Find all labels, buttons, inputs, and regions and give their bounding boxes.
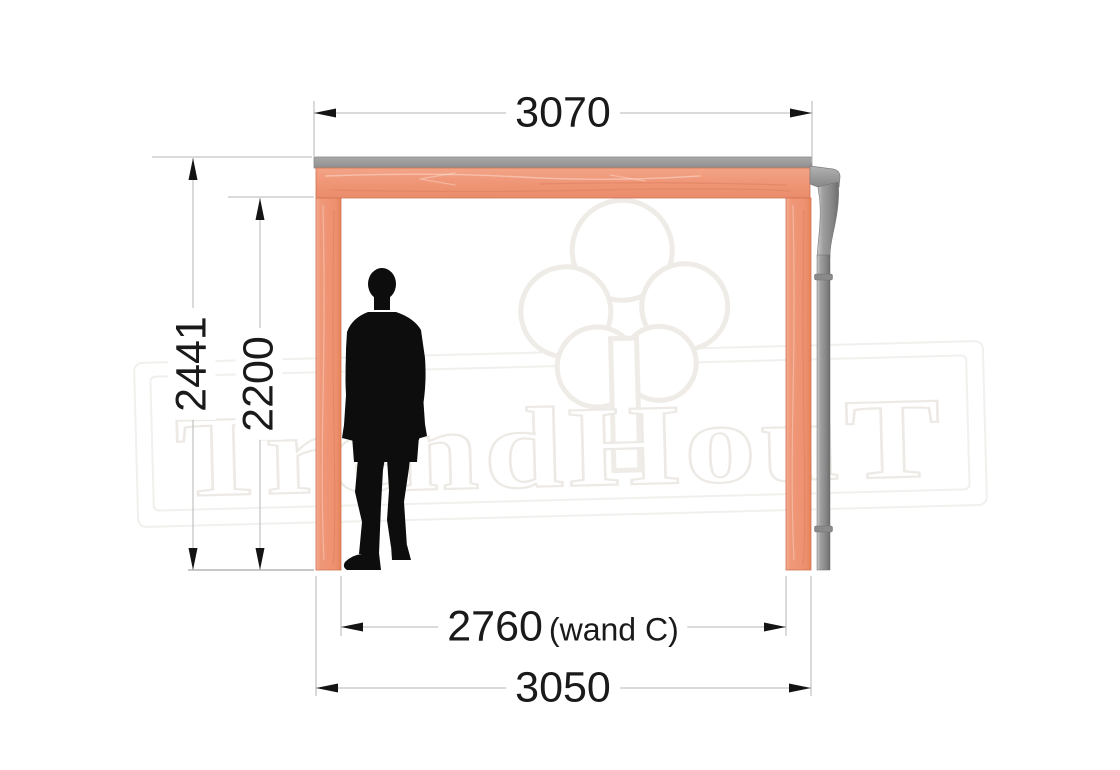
downpipe-curve xyxy=(817,182,839,257)
human-silhouette xyxy=(342,268,427,570)
downpipe-coupling xyxy=(815,274,833,280)
dim-value-inner-width: 2760 xyxy=(447,603,543,651)
dim-label-roof-width: 3070 xyxy=(506,90,620,137)
dim-label-clear-height: 2200 xyxy=(236,328,283,440)
roof-panel xyxy=(314,157,812,168)
left-post xyxy=(316,198,341,570)
downpipe-coupling xyxy=(815,526,833,532)
dim-note-inner-width: (wand C) xyxy=(543,612,679,648)
dim-label-outer-width: 3050 xyxy=(506,665,620,712)
right-post xyxy=(786,198,811,570)
watermark-text: TrendHouT xyxy=(174,374,947,521)
downpipe xyxy=(817,255,830,570)
dim-label-overall-height: 2441 xyxy=(169,308,216,420)
dim-label-inner-width: 2760(wand C) xyxy=(438,604,687,651)
veranda-side-elevation-drawing: TrendHouT xyxy=(0,0,1120,770)
